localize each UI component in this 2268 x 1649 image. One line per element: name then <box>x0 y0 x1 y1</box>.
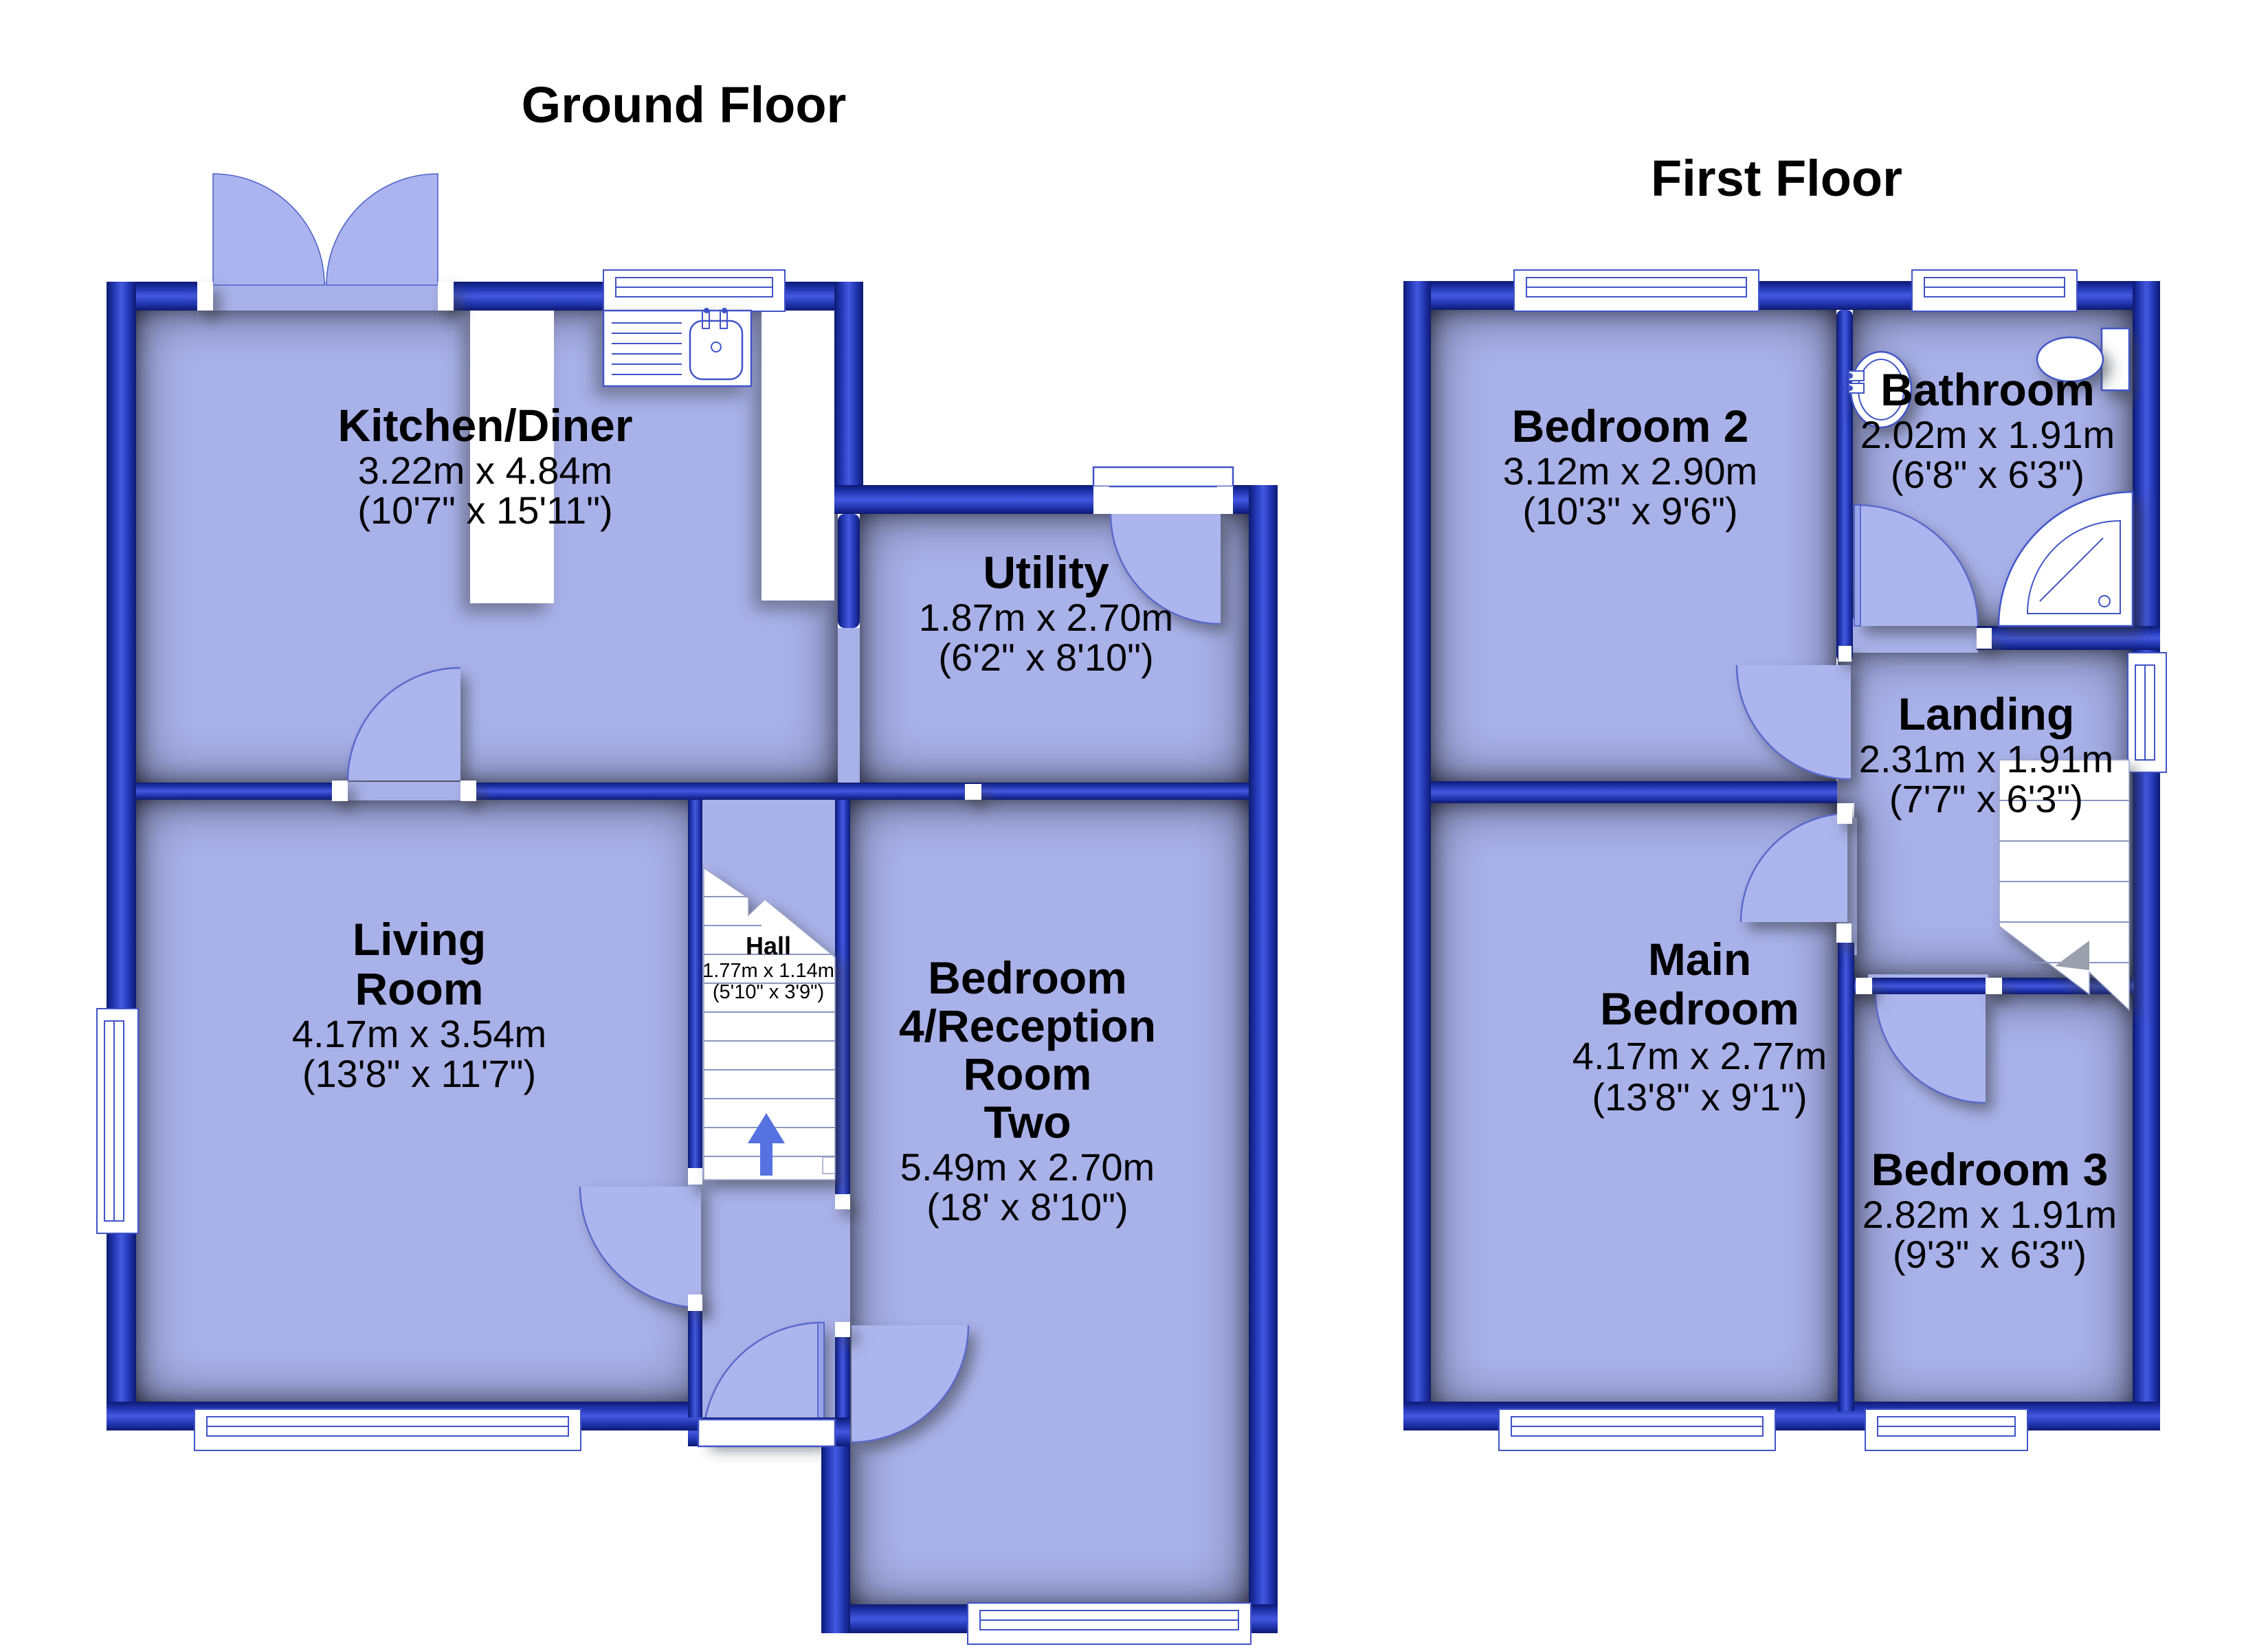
svg-text:First Floor: First Floor <box>1651 150 1902 207</box>
svg-text:(9'3" x 6'3"): (9'3" x 6'3") <box>1893 1233 2087 1276</box>
svg-text:(18' x 8'10"): (18' x 8'10") <box>926 1185 1128 1229</box>
svg-text:Hall: Hall <box>746 932 791 960</box>
svg-text:Room: Room <box>355 963 484 1014</box>
svg-text:(6'8" x 6'3"): (6'8" x 6'3") <box>1891 453 2084 496</box>
svg-text:(5'10" x 3'9"): (5'10" x 3'9") <box>713 981 824 1003</box>
svg-text:4.17m x 2.77m: 4.17m x 2.77m <box>1572 1034 1827 1077</box>
svg-text:Main: Main <box>1648 934 1751 985</box>
svg-text:(7'7" x 6'3"): (7'7" x 6'3") <box>1889 777 2083 820</box>
svg-text:(13'8" x 11'7"): (13'8" x 11'7") <box>302 1052 536 1095</box>
svg-text:Utility: Utility <box>983 547 1109 598</box>
svg-text:3.12m x 2.90m: 3.12m x 2.90m <box>1503 449 1757 493</box>
svg-text:Two: Two <box>983 1097 1071 1147</box>
svg-text:2.02m x 1.91m: 2.02m x 1.91m <box>1860 413 2115 456</box>
svg-text:5.49m x 2.70m: 5.49m x 2.70m <box>900 1145 1155 1189</box>
svg-text:2.31m x 1.91m: 2.31m x 1.91m <box>1859 737 2113 781</box>
svg-text:Bedroom: Bedroom <box>1600 983 1799 1034</box>
svg-text:3.22m x 4.84m: 3.22m x 4.84m <box>358 449 612 492</box>
svg-text:Bedroom: Bedroom <box>928 952 1127 1003</box>
svg-text:(10'7" x 15'11"): (10'7" x 15'11") <box>357 489 612 532</box>
svg-text:Room: Room <box>964 1048 1092 1099</box>
svg-text:2.82m x 1.91m: 2.82m x 1.91m <box>1863 1193 2117 1236</box>
svg-text:Bathroom: Bathroom <box>1880 364 2095 415</box>
svg-text:4/Reception: 4/Reception <box>899 1000 1156 1051</box>
svg-text:(10'3" x 9'6"): (10'3" x 9'6") <box>1522 489 1737 532</box>
svg-text:4.17m x 3.54m: 4.17m x 3.54m <box>292 1012 546 1055</box>
svg-text:Kitchen/Diner: Kitchen/Diner <box>337 400 632 451</box>
svg-text:Living: Living <box>353 914 486 965</box>
svg-text:1.77m x 1.14m: 1.77m x 1.14m <box>702 960 834 982</box>
svg-text:Ground Floor: Ground Floor <box>522 76 847 133</box>
svg-text:Landing: Landing <box>1898 688 2075 739</box>
svg-text:1.87m x 2.70m: 1.87m x 2.70m <box>919 596 1173 639</box>
svg-text:Bedroom 3: Bedroom 3 <box>1871 1144 2109 1195</box>
svg-text:Bedroom 2: Bedroom 2 <box>1512 401 1749 451</box>
svg-text:(6'2" x 8'10"): (6'2" x 8'10") <box>938 636 1153 679</box>
svg-text:(13'8" x 9'1"): (13'8" x 9'1") <box>1592 1075 1807 1119</box>
